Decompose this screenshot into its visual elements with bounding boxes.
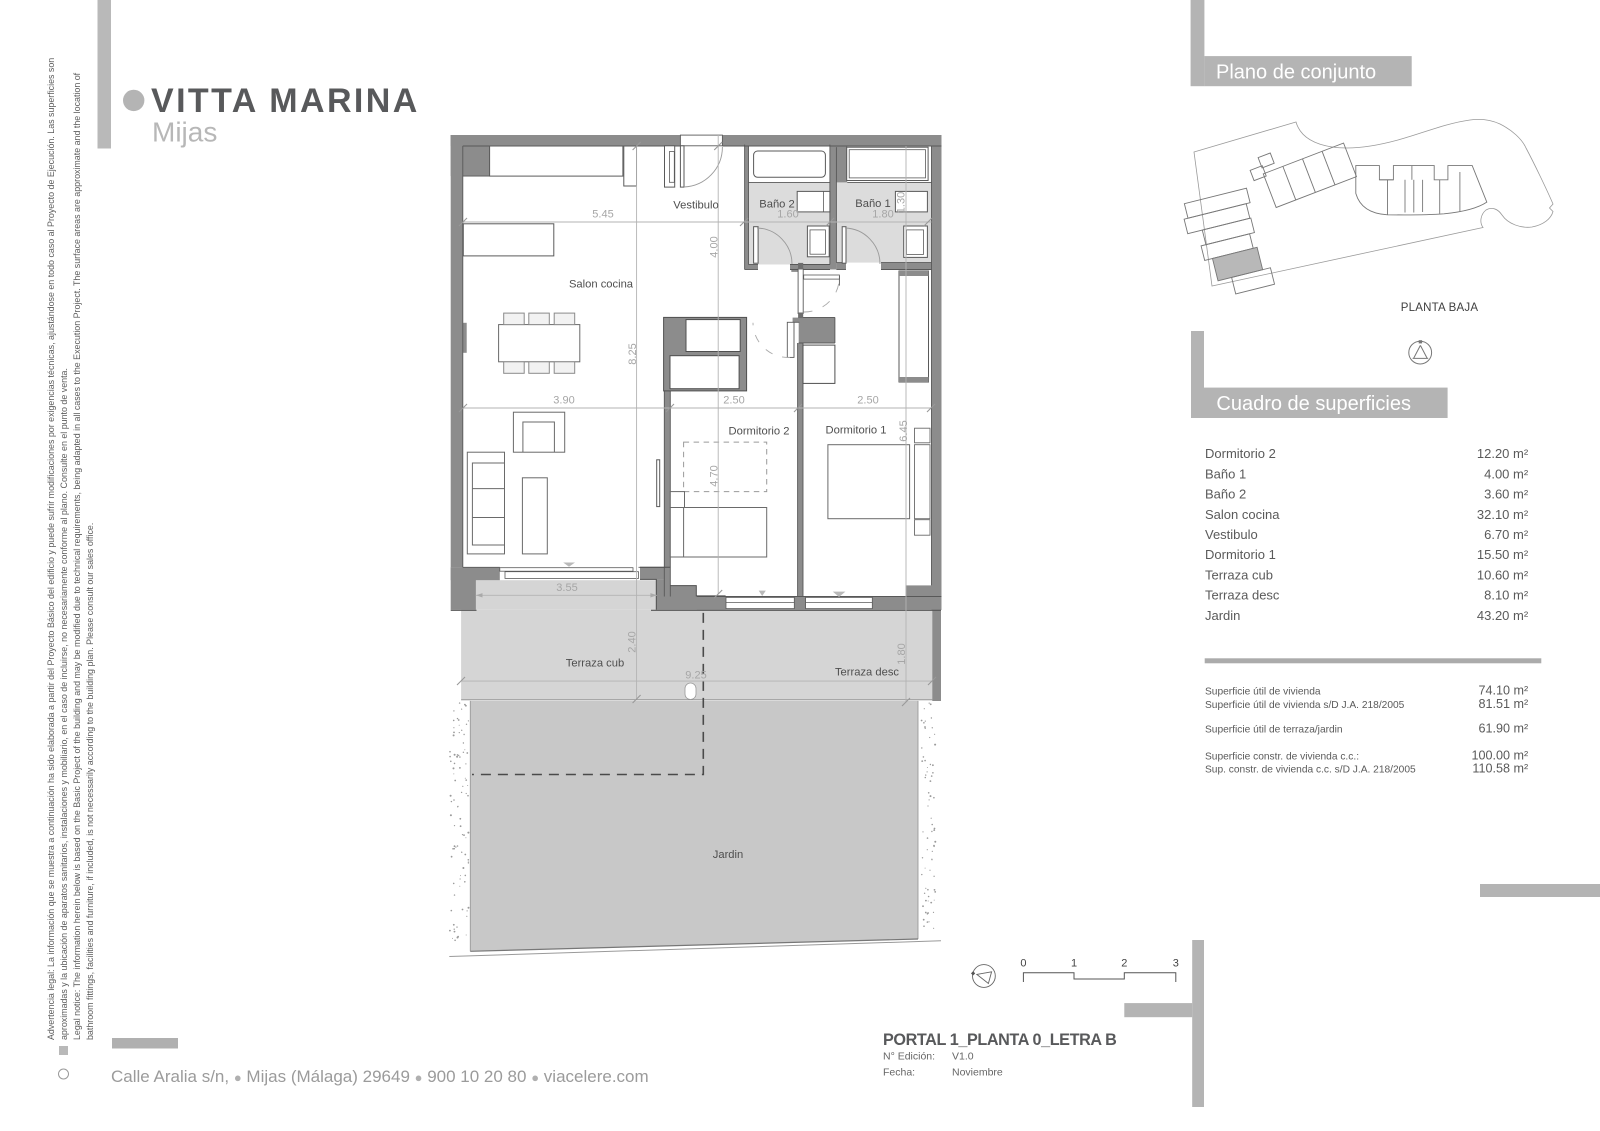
svg-text:0: 0 (1020, 958, 1026, 970)
svg-text:Advertencia legal: La informac: Advertencia legal: La información que se… (46, 58, 56, 1040)
svg-text:Legal notice: The information: Legal notice: The information herein bel… (72, 72, 82, 1040)
svg-text:1.80: 1.80 (872, 209, 893, 221)
svg-text:Salon cocina: Salon cocina (569, 279, 634, 291)
svg-text:Sup. constr. de vivienda c.c.: Sup. constr. de vivienda c.c. s/D J.A. 2… (1205, 765, 1416, 776)
svg-text:1.80: 1.80 (896, 643, 908, 664)
svg-text:Baño 1: Baño 1 (855, 198, 890, 210)
svg-text:2.50: 2.50 (723, 395, 744, 407)
svg-text:Fecha:: Fecha: (883, 1067, 915, 1079)
svg-text:4.00: 4.00 (709, 236, 721, 257)
svg-text:Mijas: Mijas (152, 117, 217, 148)
svg-text:43.20 m²: 43.20 m² (1477, 608, 1529, 623)
svg-text:81.51 m²: 81.51 m² (1478, 697, 1528, 711)
svg-text:Jardin: Jardin (713, 849, 743, 861)
svg-text:Calle Aralia s/n, ● Mijas (Mál: Calle Aralia s/n, ● Mijas (Málaga) 29649… (111, 1067, 649, 1086)
svg-text:32.10 m²: 32.10 m² (1477, 507, 1529, 522)
svg-text:110.58 m²: 110.58 m² (1472, 762, 1528, 776)
svg-text:3.90: 3.90 (553, 395, 574, 407)
svg-text:Cuadro de superficies: Cuadro de superficies (1216, 393, 1411, 415)
svg-text:Terraza cub: Terraza cub (1205, 567, 1273, 582)
svg-text:Jardin: Jardin (1205, 608, 1240, 623)
svg-text:Dormitorio 1: Dormitorio 1 (826, 425, 887, 437)
svg-text:74.10 m²: 74.10 m² (1478, 684, 1528, 698)
svg-text:1.30: 1.30 (896, 192, 908, 213)
svg-text:Superficie constr. de vivienda: Superficie constr. de vivienda c.c.: (1205, 751, 1359, 762)
svg-text:2: 2 (1121, 958, 1127, 970)
svg-text:9.25: 9.25 (685, 670, 706, 682)
svg-text:3.60 m²: 3.60 m² (1484, 487, 1529, 502)
svg-text:Vestibulo: Vestibulo (1205, 527, 1258, 542)
svg-text:Baño 2: Baño 2 (1205, 487, 1246, 502)
svg-text:61.90 m²: 61.90 m² (1478, 722, 1528, 736)
svg-text:8.25: 8.25 (627, 343, 639, 364)
svg-text:6.45: 6.45 (898, 420, 910, 441)
svg-text:6.70 m²: 6.70 m² (1484, 527, 1529, 542)
svg-text:aproximadas y la ubicación de: aproximadas y la ubicación de aparatos s… (59, 368, 69, 1040)
svg-text:Superficie útil de vivienda: Superficie útil de vivienda (1205, 687, 1321, 698)
svg-text:Terraza desc: Terraza desc (1205, 588, 1280, 603)
svg-text:Plano de conjunto: Plano de conjunto (1216, 61, 1376, 83)
svg-text:Salon cocina: Salon cocina (1205, 507, 1280, 522)
svg-text:Terraza cub: Terraza cub (566, 658, 624, 670)
svg-text:Dormitorio 2: Dormitorio 2 (729, 426, 790, 438)
svg-text:5.45: 5.45 (592, 209, 613, 221)
svg-text:Dormitorio 2: Dormitorio 2 (1205, 446, 1276, 461)
svg-text:Dormitorio 1: Dormitorio 1 (1205, 547, 1276, 562)
svg-text:PORTAL 1_PLANTA 0_LETRA B: PORTAL 1_PLANTA 0_LETRA B (883, 1031, 1116, 1049)
svg-text:12.20 m²: 12.20 m² (1477, 446, 1529, 461)
svg-text:Superficie útil de vivienda s/: Superficie útil de vivienda s/D J.A. 218… (1205, 700, 1405, 711)
svg-text:V1.0: V1.0 (952, 1051, 974, 1063)
svg-text:Noviembre: Noviembre (952, 1067, 1003, 1079)
svg-text:4.00 m²: 4.00 m² (1484, 466, 1529, 481)
svg-text:Vestibulo: Vestibulo (673, 200, 718, 212)
svg-text:15.50 m²: 15.50 m² (1477, 547, 1529, 562)
svg-text:1: 1 (1071, 958, 1077, 970)
svg-text:N° Edición:: N° Edición: (883, 1051, 935, 1063)
svg-text:VITTA MARINA: VITTA MARINA (151, 82, 420, 120)
svg-text:2.40: 2.40 (627, 631, 639, 652)
svg-text:4.70: 4.70 (709, 465, 721, 486)
svg-text:Superficie útil de terraza/jar: Superficie útil de terraza/jardin (1205, 725, 1343, 736)
svg-text:Baño 2: Baño 2 (759, 199, 794, 211)
svg-text:10.60 m²: 10.60 m² (1477, 567, 1529, 582)
svg-text:8.10 m²: 8.10 m² (1484, 588, 1529, 603)
svg-text:Terraza desc: Terraza desc (835, 667, 899, 679)
svg-text:2.50: 2.50 (857, 395, 878, 407)
svg-text:3.55: 3.55 (556, 582, 577, 594)
svg-text:100.00 m²: 100.00 m² (1471, 748, 1528, 762)
svg-text:PLANTA BAJA: PLANTA BAJA (1401, 302, 1479, 314)
svg-text:Baño 1: Baño 1 (1205, 466, 1246, 481)
svg-text:bathroom fittings, facilities: bathroom fittings, facilities and furnit… (85, 523, 95, 1040)
svg-text:3: 3 (1173, 958, 1179, 970)
